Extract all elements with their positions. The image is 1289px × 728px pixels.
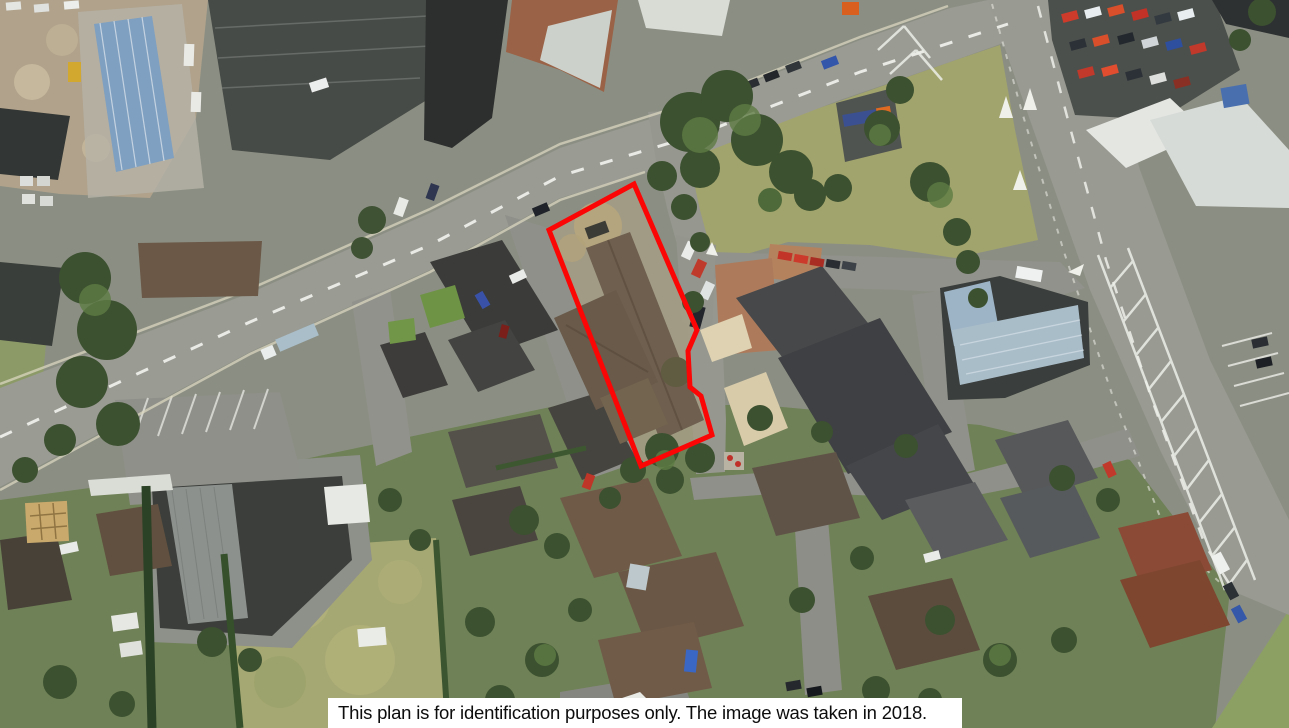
tree	[747, 405, 773, 431]
tree	[599, 487, 621, 509]
site-plan: This plan is for identification purposes…	[0, 0, 1289, 728]
garden-lawn	[388, 318, 416, 344]
tree	[956, 250, 980, 274]
dirt-mound	[14, 64, 50, 100]
tree	[886, 76, 914, 104]
tree	[465, 607, 495, 637]
tree	[12, 457, 38, 483]
tree-highlight	[682, 117, 718, 153]
tree-highlight	[729, 104, 761, 136]
van	[191, 92, 202, 112]
tree-highlight	[869, 124, 891, 146]
tree	[56, 356, 108, 408]
tree	[620, 457, 646, 483]
pergola	[25, 501, 69, 543]
tree	[544, 533, 570, 559]
patio-table	[727, 455, 733, 461]
tree	[925, 605, 955, 635]
tree	[680, 148, 720, 188]
tree	[96, 402, 140, 446]
tree	[509, 505, 539, 535]
patio-table	[735, 461, 741, 467]
car	[64, 0, 80, 9]
tree	[1049, 465, 1075, 491]
tree	[690, 232, 710, 252]
pub-building	[138, 241, 262, 298]
tree	[568, 598, 592, 622]
pallet-stack	[40, 196, 53, 206]
tree-highlight	[989, 644, 1011, 666]
tree	[378, 488, 402, 512]
tree	[238, 648, 262, 672]
tree	[109, 691, 135, 717]
hedge-line	[146, 486, 152, 728]
tree	[811, 421, 833, 443]
tree-highlight	[534, 644, 556, 666]
white-roof-small	[324, 484, 370, 525]
orange-container	[842, 2, 859, 15]
caption: This plan is for identification purposes…	[328, 698, 962, 728]
tree	[789, 587, 815, 613]
tree-highlight	[79, 284, 111, 316]
industrial-roof-dark	[0, 108, 70, 180]
pallet-stack	[20, 176, 33, 186]
tree	[671, 194, 697, 220]
field-mottle	[254, 656, 306, 708]
patio-square	[724, 452, 744, 470]
digger	[68, 62, 81, 82]
tree-highlight	[927, 182, 953, 208]
tree	[409, 529, 431, 551]
tree	[1229, 29, 1251, 51]
tree	[894, 434, 918, 458]
van	[184, 44, 195, 66]
tree	[44, 424, 76, 456]
aerial-map	[0, 0, 1289, 728]
tree	[358, 206, 386, 234]
dirt-mound	[46, 24, 78, 56]
tree	[968, 288, 988, 308]
tree	[794, 179, 826, 211]
tree	[1096, 488, 1120, 512]
tree	[656, 466, 684, 494]
tree	[824, 174, 852, 202]
greenhouse	[626, 563, 650, 590]
caravan	[357, 627, 386, 647]
tree	[647, 161, 677, 191]
tree	[850, 546, 874, 570]
tree	[758, 188, 782, 212]
pallet-stack	[37, 176, 50, 186]
tree	[43, 665, 77, 699]
car	[6, 1, 22, 10]
van	[684, 649, 698, 672]
field-mottle	[378, 560, 422, 604]
pallet-stack	[22, 194, 35, 204]
tree	[197, 627, 227, 657]
tree	[1051, 627, 1077, 653]
tree	[351, 237, 373, 259]
car	[34, 3, 50, 12]
tree	[943, 218, 971, 246]
